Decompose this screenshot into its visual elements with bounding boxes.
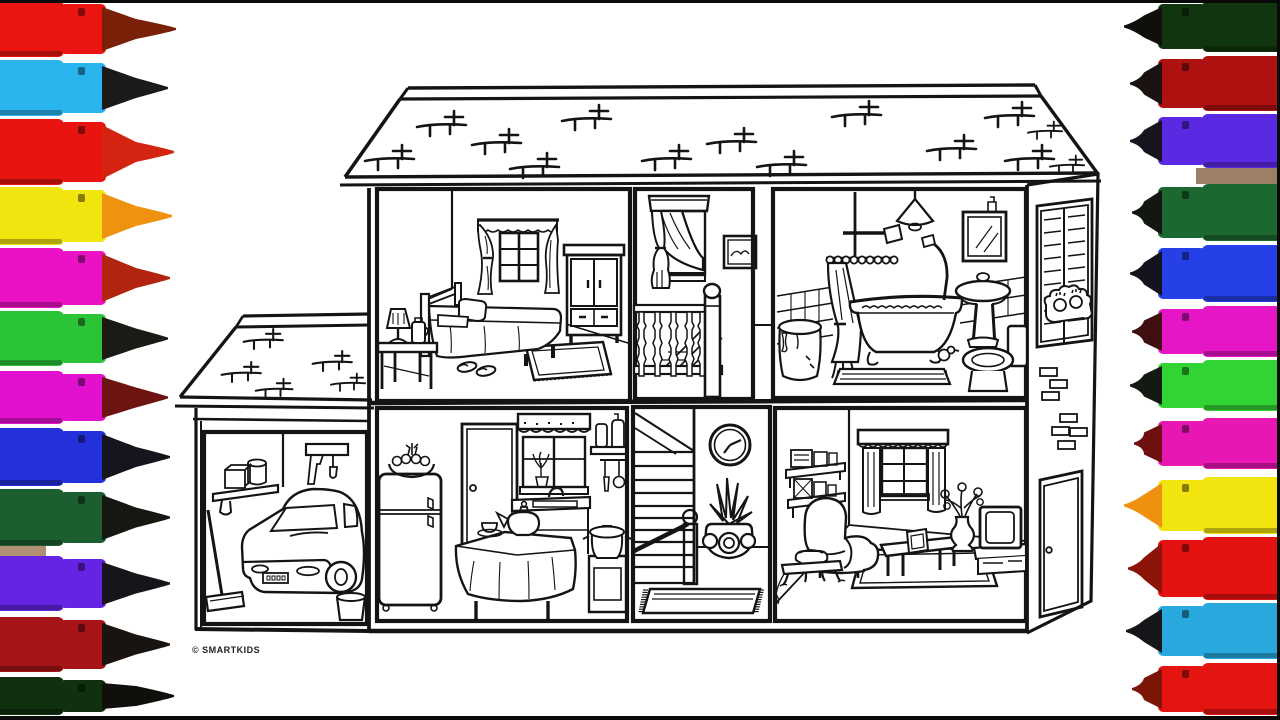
svg-text:© SMARTKIDS: © SMARTKIDS (192, 645, 260, 655)
